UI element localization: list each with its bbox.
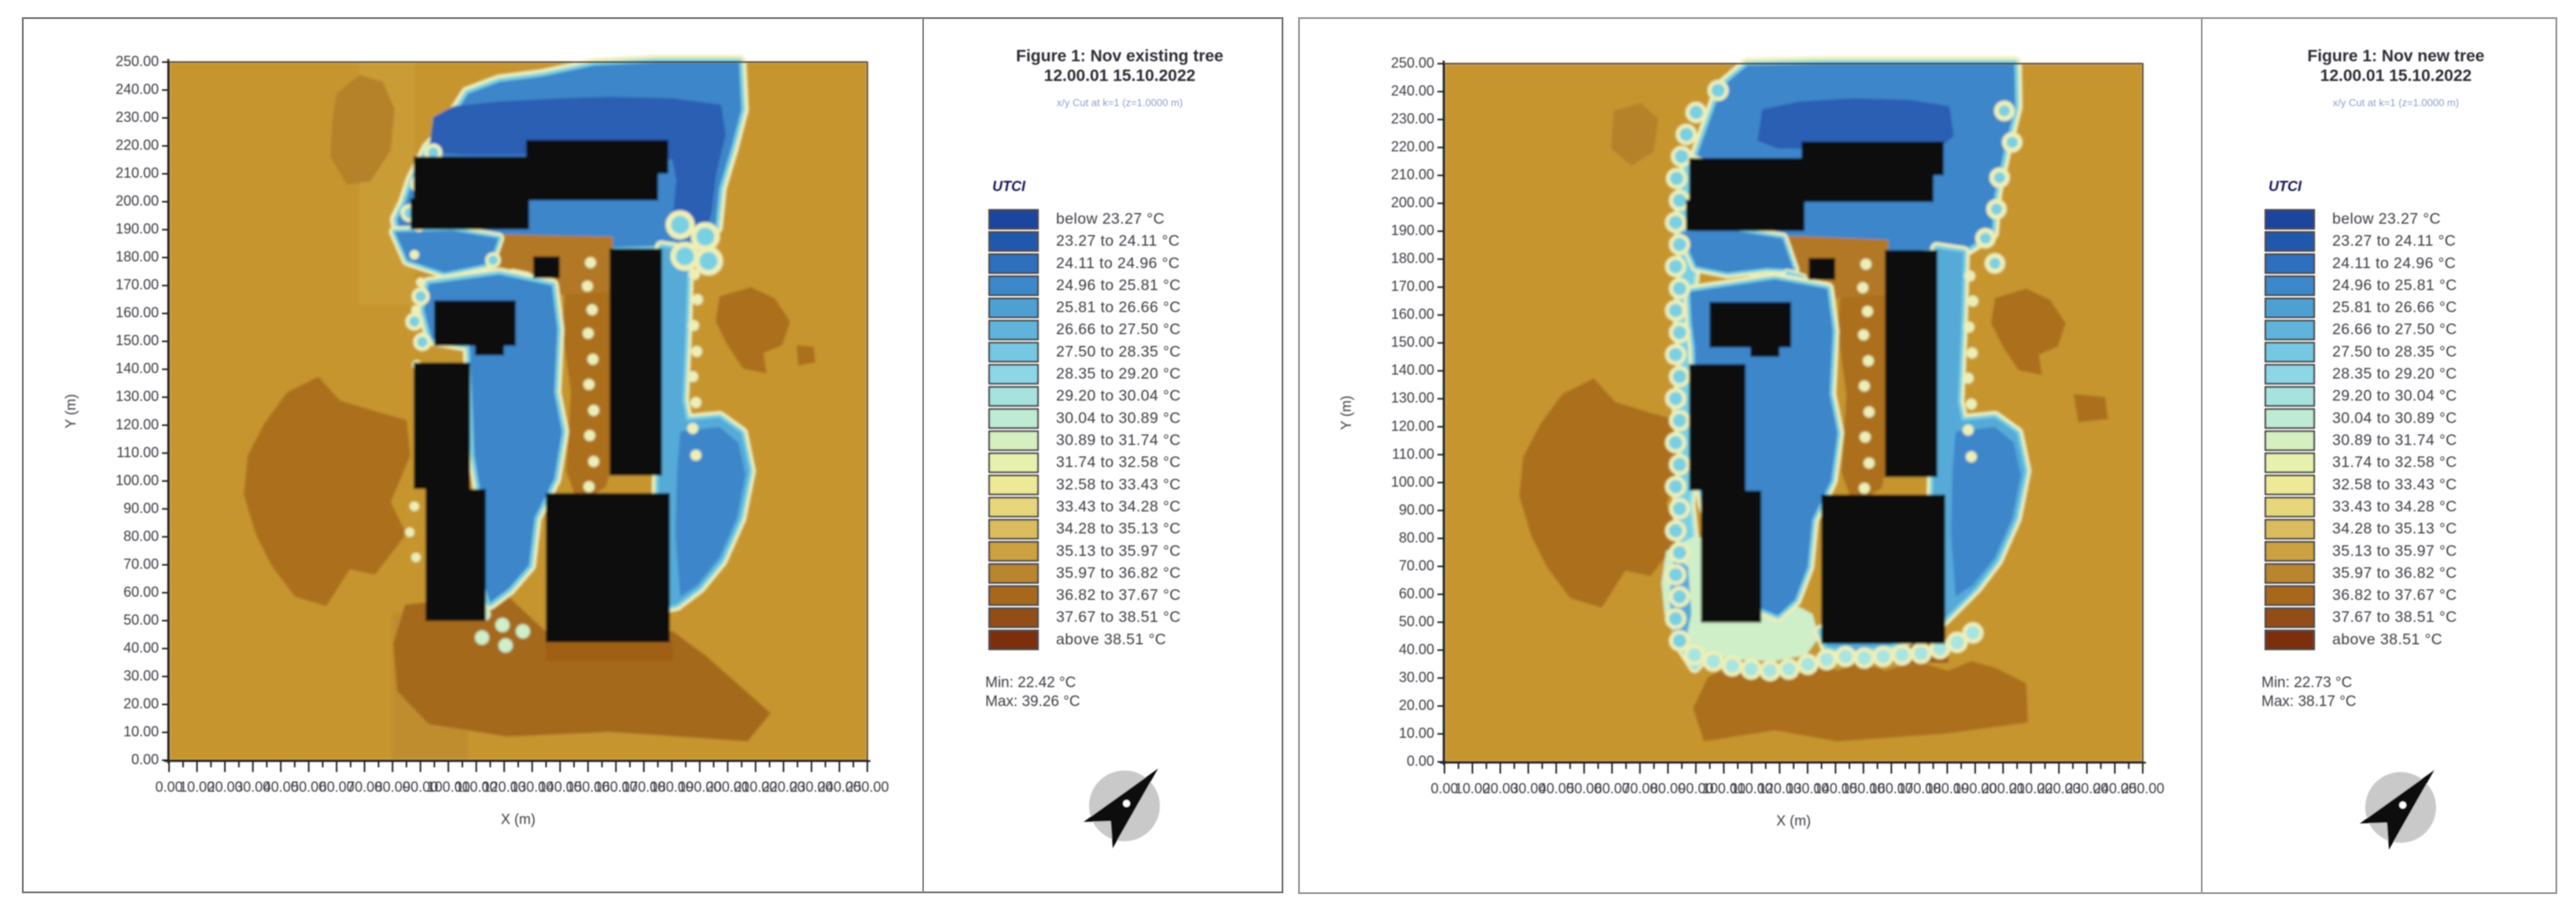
svg-text:above 38.51 °C: above 38.51 °C <box>2332 631 2442 648</box>
svg-text:24.11 to 24.96 °C: 24.11 to 24.96 °C <box>2332 255 2456 272</box>
svg-text:120.00: 120.00 <box>1391 418 1434 434</box>
svg-text:60.00: 60.00 <box>1399 586 1434 601</box>
svg-text:230.00: 230.00 <box>1391 111 1434 127</box>
svg-text:Y (m): Y (m) <box>63 394 79 428</box>
svg-text:140.00: 140.00 <box>1391 362 1434 378</box>
svg-text:180.00: 180.00 <box>116 249 159 265</box>
svg-text:250.00: 250.00 <box>1391 55 1434 71</box>
svg-text:0.00: 0.00 <box>131 752 159 767</box>
svg-text:X (m): X (m) <box>1776 813 1811 829</box>
svg-text:26.66 to 27.50 °C: 26.66 to 27.50 °C <box>2332 321 2457 338</box>
svg-text:27.50 to 28.35 °C: 27.50 to 28.35 °C <box>2332 343 2457 360</box>
svg-text:70.00: 70.00 <box>123 556 159 572</box>
svg-text:31.74 to 32.58 °C: 31.74 to 32.58 °C <box>1056 454 1181 471</box>
svg-text:12.00.01 15.10.2022: 12.00.01 15.10.2022 <box>2320 67 2472 85</box>
svg-text:80.00: 80.00 <box>123 528 159 544</box>
svg-text:130.00: 130.00 <box>116 388 159 404</box>
svg-text:10.00: 10.00 <box>123 724 159 740</box>
svg-text:210.00: 210.00 <box>116 165 159 181</box>
svg-text:24.96 to 25.81 °C: 24.96 to 25.81 °C <box>1056 277 1181 294</box>
svg-text:30.00: 30.00 <box>1399 669 1434 685</box>
svg-text:X (m): X (m) <box>501 811 535 827</box>
svg-text:Max: 38.17 °C: Max: 38.17 °C <box>2261 693 2357 710</box>
svg-text:50.00: 50.00 <box>123 612 159 627</box>
svg-text:230.00: 230.00 <box>116 109 159 125</box>
svg-text:160.00: 160.00 <box>1391 307 1434 322</box>
svg-text:37.67 to 38.51 °C: 37.67 to 38.51 °C <box>1056 609 1181 626</box>
svg-text:80.00: 80.00 <box>1399 530 1434 546</box>
svg-text:30.89 to 31.74 °C: 30.89 to 31.74 °C <box>1056 432 1181 449</box>
svg-text:150.00: 150.00 <box>1391 334 1434 350</box>
svg-text:170.00: 170.00 <box>1391 278 1434 294</box>
svg-text:23.27 to 24.11 °C: 23.27 to 24.11 °C <box>2332 233 2456 250</box>
svg-text:100.00: 100.00 <box>116 473 159 488</box>
svg-text:20.00: 20.00 <box>123 696 159 712</box>
svg-text:240.00: 240.00 <box>1391 83 1434 99</box>
svg-text:33.43 to 34.28 °C: 33.43 to 34.28 °C <box>2332 498 2457 516</box>
svg-text:90.00: 90.00 <box>123 500 159 516</box>
svg-text:60.00: 60.00 <box>123 584 159 600</box>
svg-text:above 38.51 °C: above 38.51 °C <box>1056 631 1166 648</box>
svg-text:250.00: 250.00 <box>2121 781 2164 796</box>
svg-text:250.00: 250.00 <box>845 779 889 795</box>
svg-text:31.74 to 32.58 °C: 31.74 to 32.58 °C <box>2332 454 2457 471</box>
svg-text:23.27 to 24.11 °C: 23.27 to 24.11 °C <box>1056 233 1179 250</box>
svg-text:180.00: 180.00 <box>1391 251 1434 267</box>
svg-text:120.00: 120.00 <box>116 417 159 432</box>
svg-text:29.20 to 30.04 °C: 29.20 to 30.04 °C <box>1056 388 1181 405</box>
svg-text:110.00: 110.00 <box>1392 446 1434 462</box>
svg-text:30.89 to 31.74 °C: 30.89 to 31.74 °C <box>2332 432 2457 449</box>
svg-text:210.00: 210.00 <box>1391 167 1434 182</box>
svg-text:30.04 to 30.89 °C: 30.04 to 30.89 °C <box>2332 410 2457 427</box>
svg-text:28.35 to 29.20 °C: 28.35 to 29.20 °C <box>1056 366 1181 383</box>
svg-text:25.81 to 26.66 °C: 25.81 to 26.66 °C <box>1056 299 1181 316</box>
svg-text:200.00: 200.00 <box>116 193 159 209</box>
svg-text:40.00: 40.00 <box>123 640 159 656</box>
svg-text:Y (m): Y (m) <box>1338 395 1354 430</box>
svg-text:30.04 to 30.89 °C: 30.04 to 30.89 °C <box>1056 410 1181 427</box>
svg-text:36.82 to 37.67 °C: 36.82 to 37.67 °C <box>1056 587 1181 604</box>
svg-text:29.20 to 30.04 °C: 29.20 to 30.04 °C <box>2332 388 2457 405</box>
svg-text:x/y Cut at k=1 (z=1.0000 m): x/y Cut at k=1 (z=1.0000 m) <box>1057 97 1183 108</box>
svg-text:Max: 39.26 °C: Max: 39.26 °C <box>985 693 1080 710</box>
svg-text:35.97 to 36.82 °C: 35.97 to 36.82 °C <box>2332 564 2457 582</box>
svg-text:35.97 to 36.82 °C: 35.97 to 36.82 °C <box>1056 564 1181 582</box>
svg-text:40.00: 40.00 <box>1399 642 1434 657</box>
svg-text:250.00: 250.00 <box>116 53 159 69</box>
svg-text:20.00: 20.00 <box>1399 697 1434 713</box>
svg-text:UTCI: UTCI <box>2269 178 2302 194</box>
svg-text:below 23.27 °C: below 23.27 °C <box>1056 211 1165 228</box>
svg-text:34.28 to 35.13 °C: 34.28 to 35.13 °C <box>2332 520 2457 538</box>
svg-text:150.00: 150.00 <box>116 333 159 348</box>
svg-text:33.43 to 34.28 °C: 33.43 to 34.28 °C <box>1056 498 1181 516</box>
svg-text:50.00: 50.00 <box>1399 613 1434 629</box>
svg-text:90.00: 90.00 <box>1399 502 1434 517</box>
svg-text:100.00: 100.00 <box>1391 474 1434 490</box>
svg-text:160.00: 160.00 <box>116 305 159 321</box>
svg-text:27.50 to 28.35 °C: 27.50 to 28.35 °C <box>1056 343 1181 360</box>
svg-text:200.00: 200.00 <box>1391 195 1434 211</box>
svg-text:220.00: 220.00 <box>116 138 159 153</box>
svg-text:36.82 to 37.67 °C: 36.82 to 37.67 °C <box>2332 587 2457 604</box>
svg-text:12.00.01 15.10.2022: 12.00.01 15.10.2022 <box>1044 67 1196 85</box>
svg-text:below 23.27 °C: below 23.27 °C <box>2332 211 2441 228</box>
svg-text:35.13 to 35.97 °C: 35.13 to 35.97 °C <box>1056 542 1181 560</box>
svg-text:190.00: 190.00 <box>116 221 159 237</box>
svg-text:25.81 to 26.66 °C: 25.81 to 26.66 °C <box>2332 299 2457 316</box>
svg-text:0.00: 0.00 <box>1407 753 1434 769</box>
svg-text:Figure 1: Nov existing tree: Figure 1: Nov existing tree <box>1016 47 1224 65</box>
svg-text:32.58 to 33.43 °C: 32.58 to 33.43 °C <box>1056 476 1181 493</box>
svg-text:30.00: 30.00 <box>123 667 159 683</box>
svg-text:35.13 to 35.97 °C: 35.13 to 35.97 °C <box>2332 542 2457 560</box>
svg-text:170.00: 170.00 <box>116 277 159 292</box>
svg-text:130.00: 130.00 <box>1391 390 1434 406</box>
svg-text:x/y Cut at k=1 (z=1.0000 m): x/y Cut at k=1 (z=1.0000 m) <box>2333 97 2459 108</box>
svg-text:70.00: 70.00 <box>1399 557 1434 573</box>
svg-text:240.00: 240.00 <box>116 82 159 97</box>
svg-text:Figure 1: Nov new tree: Figure 1: Nov new tree <box>2307 47 2484 65</box>
svg-text:140.00: 140.00 <box>116 361 159 377</box>
svg-text:110.00: 110.00 <box>116 444 159 460</box>
svg-text:10.00: 10.00 <box>1399 726 1434 741</box>
svg-text:Min: 22.42 °C: Min: 22.42 °C <box>985 675 1076 691</box>
svg-text:220.00: 220.00 <box>1391 139 1434 155</box>
svg-text:26.66 to 27.50 °C: 26.66 to 27.50 °C <box>1056 321 1181 338</box>
svg-text:190.00: 190.00 <box>1391 222 1434 238</box>
svg-text:UTCI: UTCI <box>992 178 1026 194</box>
svg-text:24.11 to 24.96 °C: 24.11 to 24.96 °C <box>1056 255 1179 272</box>
svg-text:32.58 to 33.43 °C: 32.58 to 33.43 °C <box>2332 476 2457 493</box>
svg-text:Min: 22.73 °C: Min: 22.73 °C <box>2261 675 2352 691</box>
svg-text:37.67 to 38.51 °C: 37.67 to 38.51 °C <box>2332 609 2457 626</box>
svg-text:34.28 to 35.13 °C: 34.28 to 35.13 °C <box>1056 520 1181 538</box>
svg-text:28.35 to 29.20 °C: 28.35 to 29.20 °C <box>2332 366 2457 383</box>
svg-text:24.96 to 25.81 °C: 24.96 to 25.81 °C <box>2332 277 2457 294</box>
